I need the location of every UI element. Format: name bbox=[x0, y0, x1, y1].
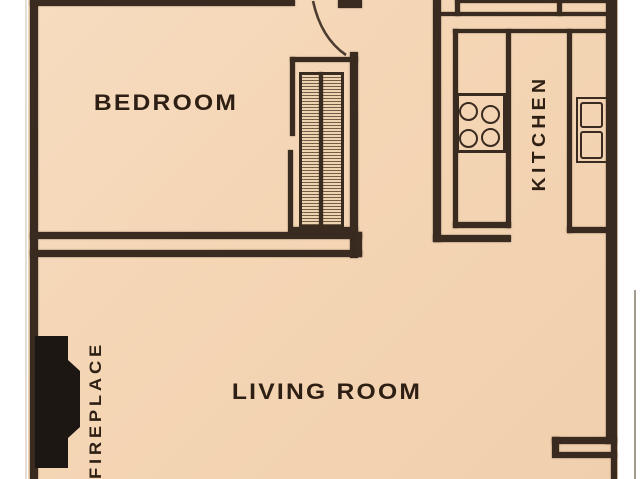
upper-cabinet-left-edge bbox=[455, 0, 460, 16]
floor-plan-image: BEDROOM LIVING ROOM KITCHEN FIREPLACE bbox=[0, 0, 640, 479]
counter-top-edge bbox=[453, 29, 612, 33]
photo-edge-left bbox=[25, 0, 27, 479]
alcove-wall-left bbox=[552, 437, 559, 458]
stove-burner-icon bbox=[459, 129, 478, 148]
photo-edge-right bbox=[634, 290, 636, 479]
wall-kitchen-bottom bbox=[433, 235, 511, 242]
wall-right-outer bbox=[606, 0, 617, 444]
stove-burner-icon bbox=[481, 128, 500, 147]
stove-burner-icon bbox=[459, 102, 478, 121]
sink-basin-icon bbox=[580, 131, 603, 159]
sink-basin-icon bbox=[580, 102, 603, 128]
wall-top-bedroom bbox=[30, 0, 295, 6]
wall-right-lower bbox=[611, 444, 617, 479]
wall-living-top bbox=[30, 250, 362, 257]
wall-corner-connector bbox=[355, 232, 362, 257]
wall-left-outer bbox=[30, 0, 38, 479]
closet-wall-left-upper bbox=[290, 57, 295, 136]
counter-left-bottom-edge bbox=[453, 222, 511, 228]
upper-cabinet-bottom-line bbox=[441, 12, 614, 16]
closet-wall-top bbox=[290, 57, 358, 62]
upper-cabinet-top-line bbox=[455, 0, 614, 3]
closet-divider bbox=[319, 72, 323, 228]
bedroom-label: BEDROOM bbox=[54, 90, 278, 116]
kitchen-label: KITCHEN bbox=[529, 63, 549, 203]
floor-plan: BEDROOM LIVING ROOM KITCHEN FIREPLACE bbox=[0, 0, 640, 479]
door-jamb-block bbox=[338, 0, 362, 8]
alcove-wall-top bbox=[552, 437, 617, 444]
stove-burner-icon bbox=[481, 105, 500, 124]
wall-kitchen-left bbox=[433, 0, 441, 242]
alcove-wall-bottom bbox=[559, 452, 617, 458]
closet-wall-left-lower bbox=[288, 150, 293, 233]
fireplace-label: FIREPLACE bbox=[86, 324, 108, 479]
counter-left-east-edge bbox=[506, 29, 511, 228]
counter-right-west-edge bbox=[567, 29, 572, 233]
upper-cabinet-divider bbox=[557, 0, 562, 16]
wall-bedroom-bottom bbox=[30, 232, 362, 239]
living-room-label: LIVING ROOM bbox=[204, 379, 450, 405]
